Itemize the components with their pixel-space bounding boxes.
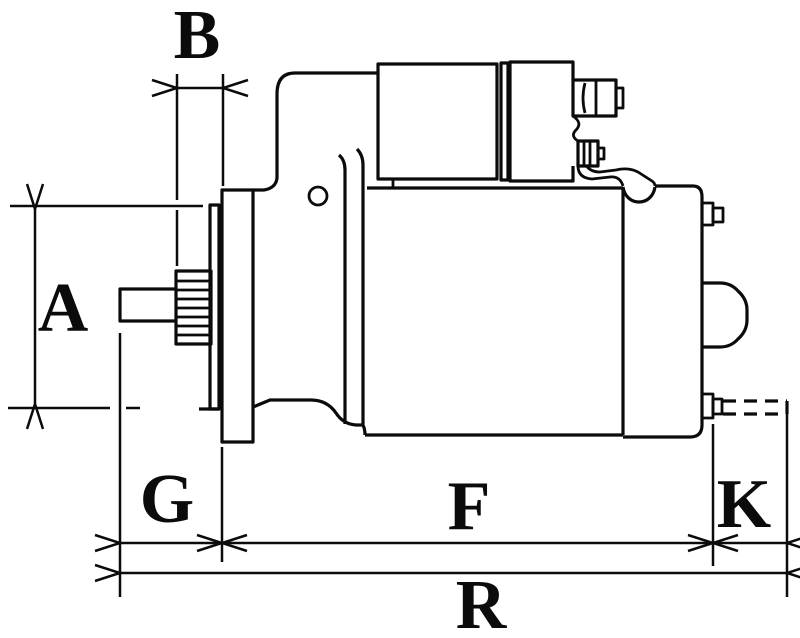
- motor-terminal-body: [578, 141, 598, 166]
- technical-drawing-page: B A G F K: [0, 0, 800, 638]
- motor-terminal: [578, 141, 655, 186]
- terminal-stud-shading: [583, 83, 585, 113]
- lead-boot-dome: [623, 187, 655, 202]
- dimension-label-f: F: [448, 468, 491, 545]
- mounting-flange: [222, 190, 253, 442]
- drive-housing-bottom: [253, 400, 365, 435]
- drive-housing-top: [253, 73, 378, 190]
- terminal-stud-body: [573, 80, 616, 116]
- housing-joint-curve-left: [339, 155, 345, 424]
- dimension-k: K: [713, 466, 787, 543]
- terminal-stud-tip: [616, 88, 623, 108]
- starter-motor-dimension-diagram: B A G F K: [0, 0, 800, 638]
- bearing-collar: [210, 205, 219, 409]
- dimension-label-b: B: [174, 0, 221, 74]
- dimension-label-r: R: [456, 567, 508, 638]
- solenoid-spacer: [501, 63, 508, 180]
- rear-bolt-top-head: [713, 208, 723, 222]
- rear-bolt-bottom: [702, 394, 722, 418]
- dimension-r: R: [120, 567, 787, 638]
- rear-bolt-top: [702, 203, 723, 225]
- rear-bearing-boss: [702, 283, 747, 347]
- solenoid-body: [378, 64, 497, 179]
- dimension-a: A: [8, 206, 203, 408]
- shaft: [120, 289, 176, 321]
- dimension-label-k: K: [717, 466, 771, 543]
- rear-bolt-top-washer: [702, 203, 713, 225]
- motor-terminal-tip: [598, 148, 604, 159]
- dimension-b: B: [174, 0, 223, 266]
- solenoid-cap: [510, 62, 573, 181]
- battery-terminal-stud: [573, 80, 623, 116]
- solenoid-cap-notch: [573, 116, 579, 141]
- housing-joint-curve-right: [357, 149, 363, 424]
- rear-bolt-bottom-washer: [702, 394, 713, 418]
- pinion-gear-teeth: [176, 281, 211, 335]
- rear-bolt-bottom-head: [713, 399, 722, 414]
- starter-motor-outline: [120, 62, 787, 442]
- stud-projection-dashed: [723, 401, 787, 414]
- dimension-g: G: [120, 461, 222, 543]
- housing-hole: [309, 187, 327, 205]
- dimension-label-a: A: [38, 270, 89, 347]
- rear-end-cap: [623, 186, 702, 437]
- dimension-f: F: [222, 468, 713, 545]
- dimension-label-g: G: [140, 461, 194, 538]
